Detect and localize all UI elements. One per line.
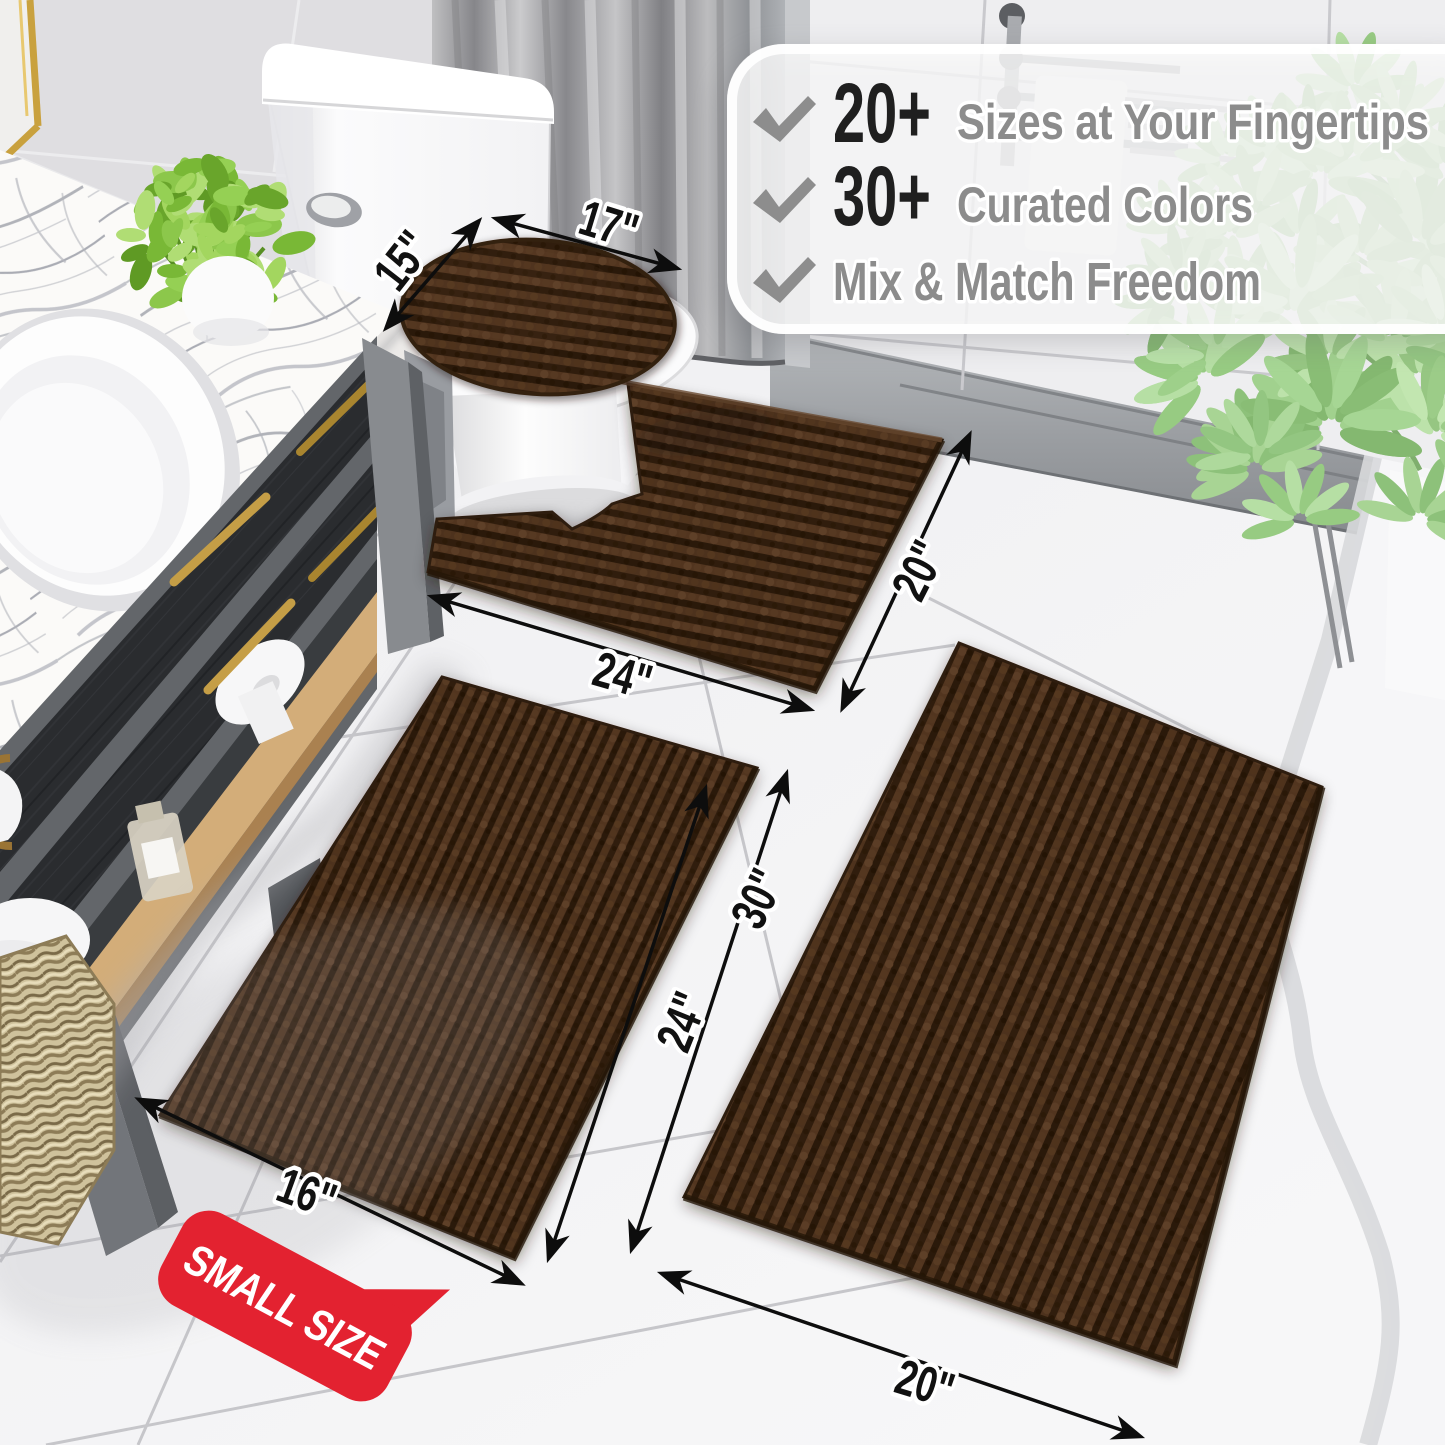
svg-text:Curated Colors: Curated Colors bbox=[957, 177, 1253, 233]
svg-text:30+: 30+ bbox=[833, 149, 931, 243]
svg-text:Mix & Match Freedom: Mix & Match Freedom bbox=[833, 252, 1261, 312]
svg-text:20+: 20+ bbox=[833, 66, 931, 160]
svg-text:Sizes at Your Fingertips: Sizes at Your Fingertips bbox=[957, 94, 1429, 150]
